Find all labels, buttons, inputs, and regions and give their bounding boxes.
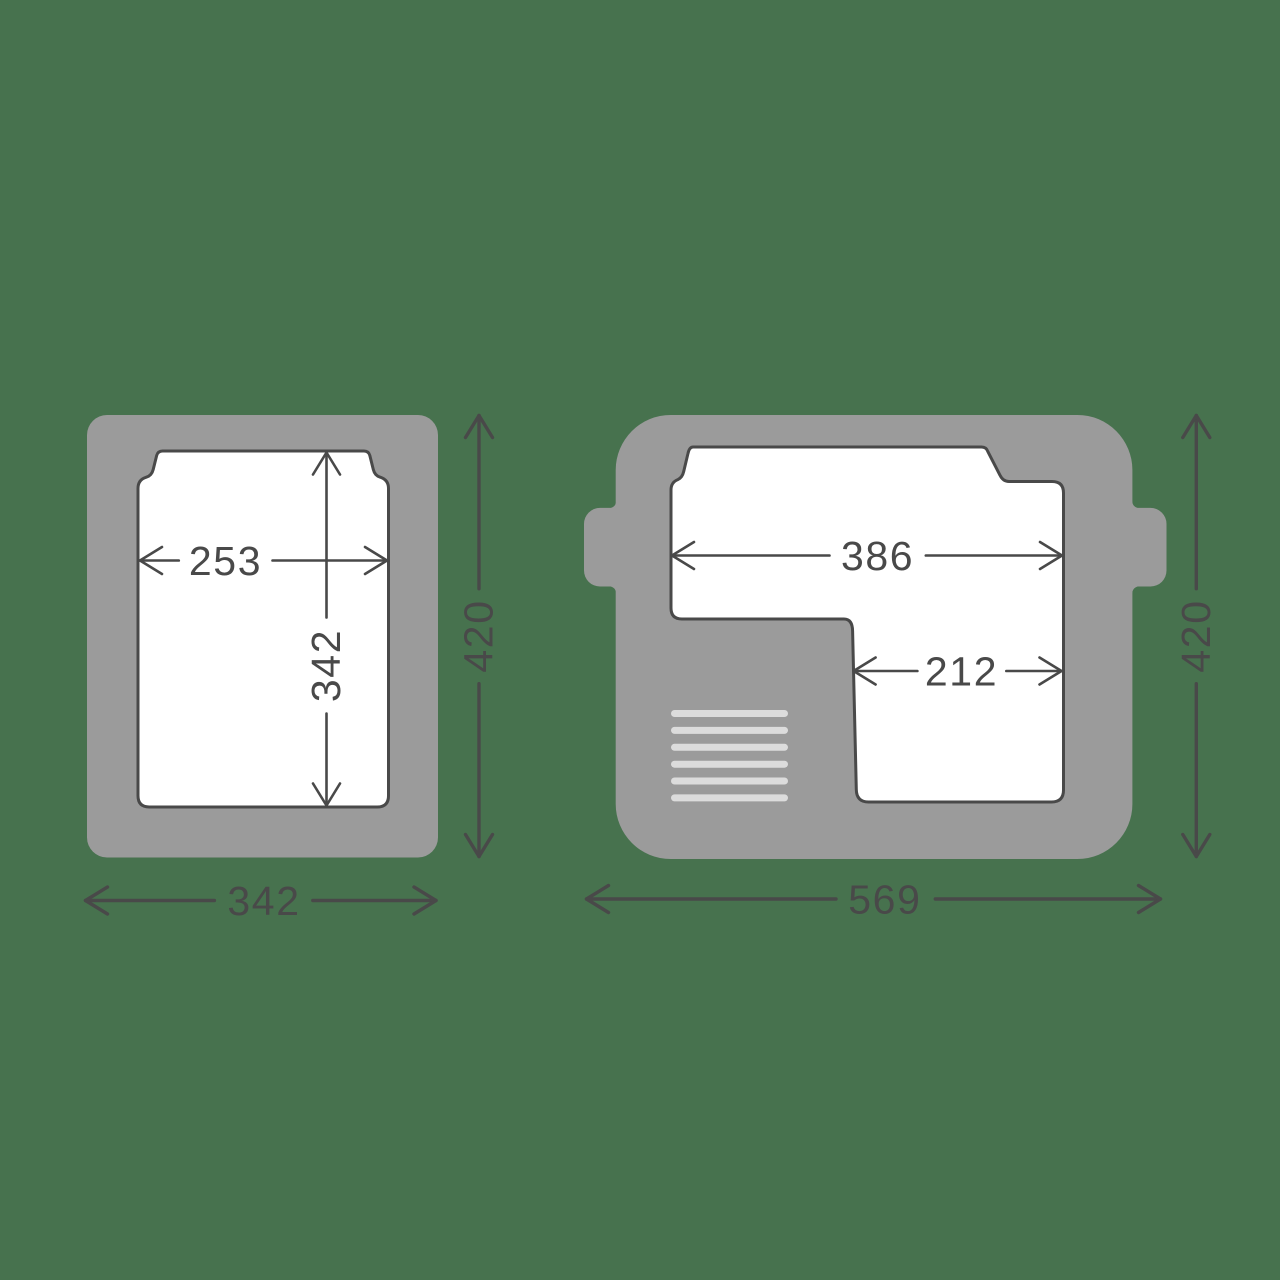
svg-text:212: 212: [925, 649, 998, 695]
svg-text:420: 420: [1173, 599, 1219, 672]
svg-text:342: 342: [303, 629, 349, 702]
svg-text:420: 420: [456, 599, 502, 672]
svg-text:253: 253: [189, 538, 262, 584]
svg-text:569: 569: [848, 876, 921, 922]
svg-text:386: 386: [841, 533, 914, 579]
svg-text:342: 342: [227, 878, 300, 924]
